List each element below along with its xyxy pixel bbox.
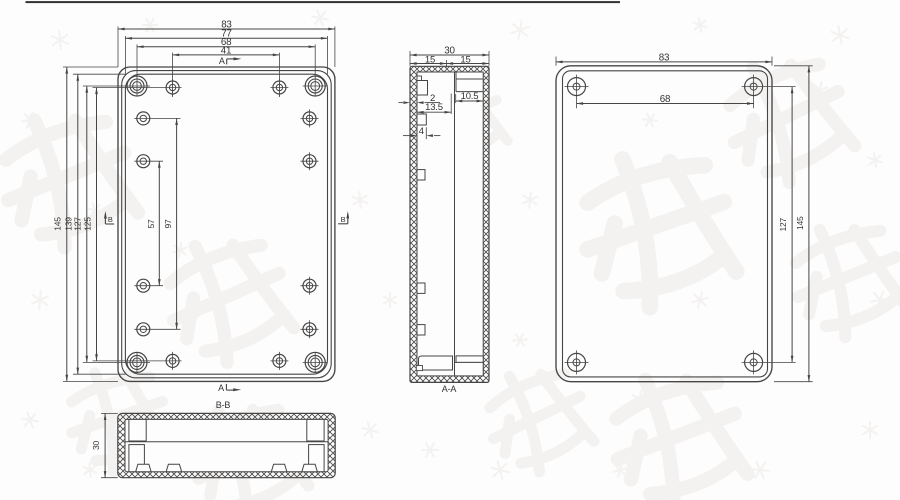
svg-text:15: 15 (425, 54, 435, 65)
svg-text:B: B (108, 215, 113, 224)
svg-text:127: 127 (73, 217, 83, 231)
svg-text:127: 127 (778, 217, 788, 231)
svg-text:57: 57 (146, 219, 156, 229)
svg-text:68: 68 (660, 94, 671, 105)
svg-text:30: 30 (91, 441, 101, 451)
svg-text:B: B (341, 215, 346, 224)
svg-text:A: A (218, 383, 224, 393)
svg-text:145: 145 (795, 216, 805, 230)
svg-text:A-A: A-A (442, 384, 457, 394)
svg-text:4: 4 (419, 126, 424, 137)
svg-text:10.5: 10.5 (461, 91, 479, 102)
svg-text:97: 97 (163, 219, 173, 229)
svg-text:125: 125 (82, 217, 92, 231)
svg-text:30: 30 (444, 45, 455, 56)
svg-text:A: A (219, 56, 225, 66)
svg-text:83: 83 (659, 52, 670, 63)
svg-text:15: 15 (460, 54, 470, 65)
svg-text:41: 41 (221, 45, 232, 56)
svg-text:B-B: B-B (216, 400, 231, 410)
svg-text:13.5: 13.5 (425, 102, 443, 113)
svg-text:145: 145 (52, 217, 62, 231)
